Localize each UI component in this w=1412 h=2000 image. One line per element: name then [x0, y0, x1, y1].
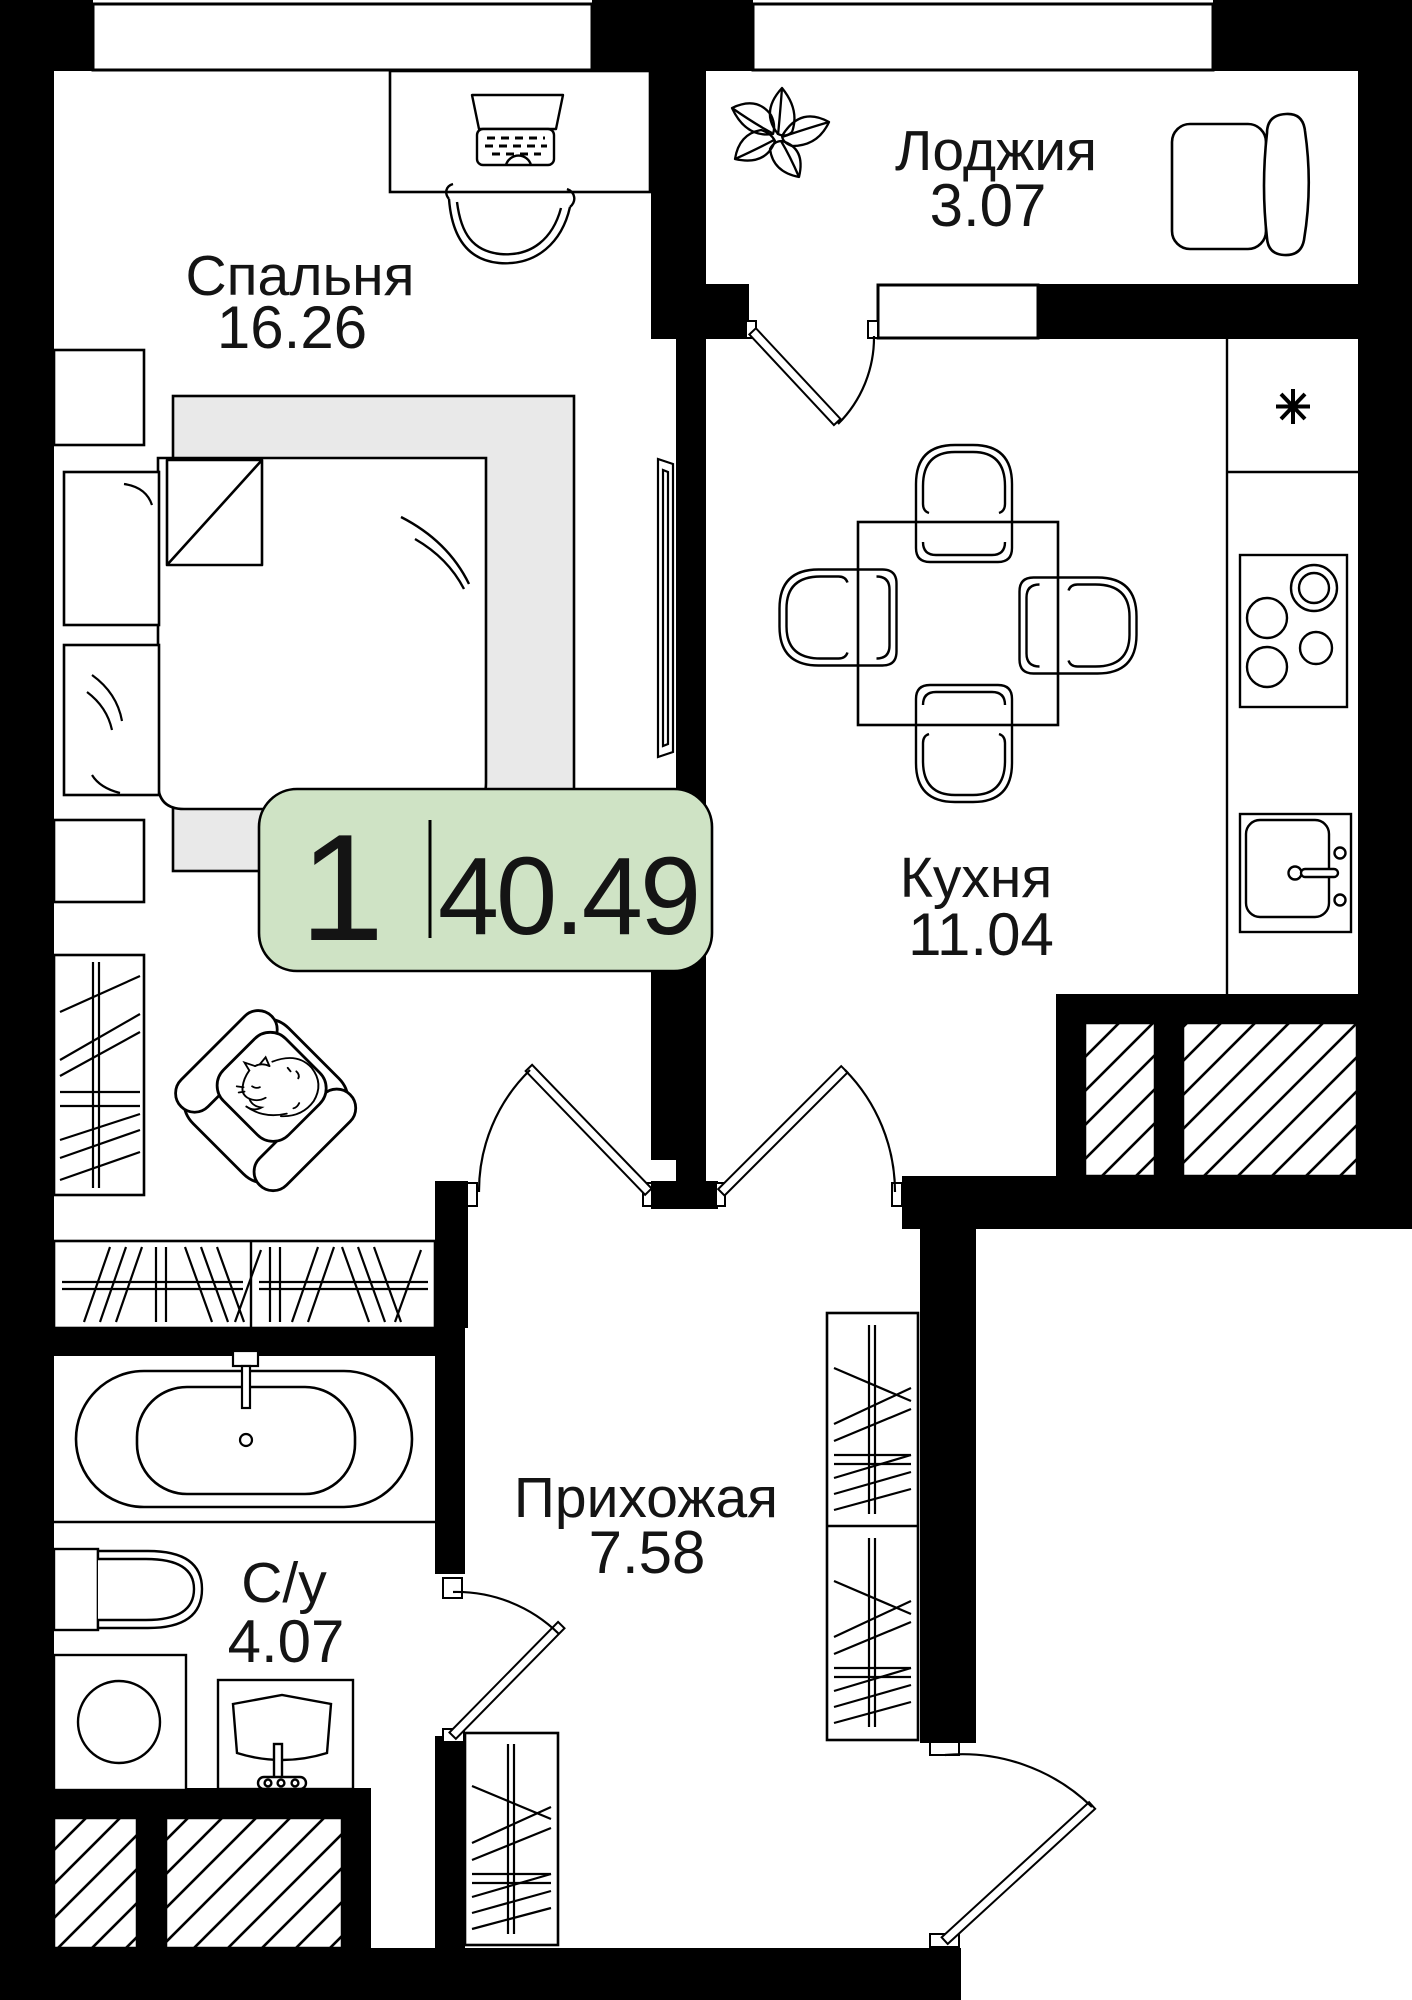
- svg-text:С/у: С/у: [241, 1551, 327, 1615]
- svg-text:40.49: 40.49: [438, 835, 698, 958]
- svg-text:11.04: 11.04: [908, 901, 1054, 968]
- svg-text:3.07: 3.07: [930, 172, 1047, 239]
- svg-text:1: 1: [300, 803, 385, 973]
- svg-text:16.26: 16.26: [217, 294, 367, 361]
- svg-text:7.58: 7.58: [589, 1519, 706, 1586]
- svg-text:4.07: 4.07: [228, 1608, 345, 1675]
